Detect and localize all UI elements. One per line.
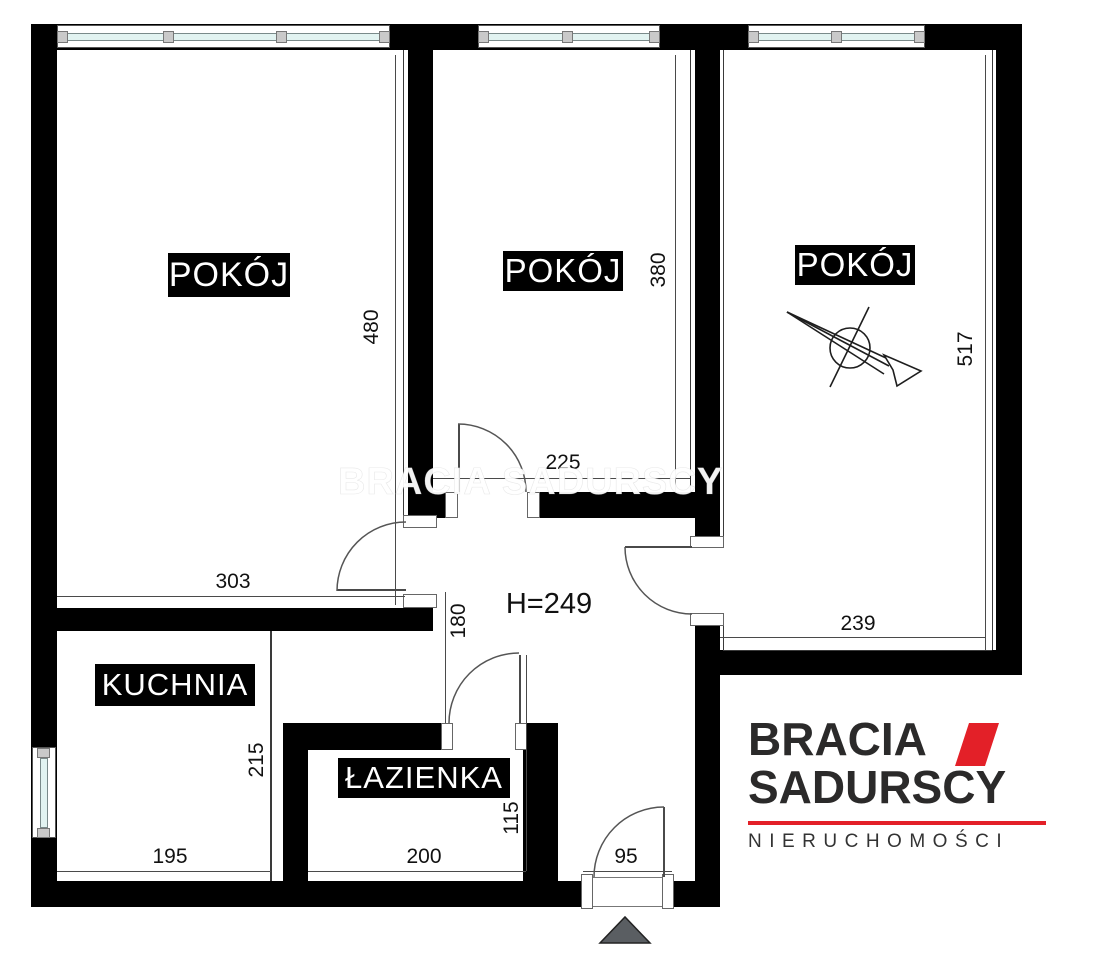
- door-arc-entrance: [594, 807, 664, 877]
- logo-brand-line1: BRACIA: [748, 713, 927, 765]
- entrance-arrow-icon: [600, 917, 650, 943]
- logo-tagline: NIERUCHOMOŚCI: [748, 831, 1058, 853]
- floor-plan: POKÓJ POKÓJ POKÓJ KUCHNIA ŁAZIENKA 480 3…: [0, 0, 1094, 960]
- north-arrow-icon: [787, 307, 921, 387]
- door-arc-room1: [337, 522, 406, 591]
- agency-logo: BRACIA SADURSCY: [748, 716, 1058, 812]
- logo-red-mark-icon: [955, 723, 999, 766]
- door-arc-room3: [625, 547, 692, 614]
- logo-accent-line: [748, 821, 1046, 825]
- door-arc-bath: [449, 653, 519, 723]
- watermark-text: BRACIA SADURSCY: [338, 461, 758, 503]
- logo-brand-line2: SADURSCY: [748, 761, 1006, 813]
